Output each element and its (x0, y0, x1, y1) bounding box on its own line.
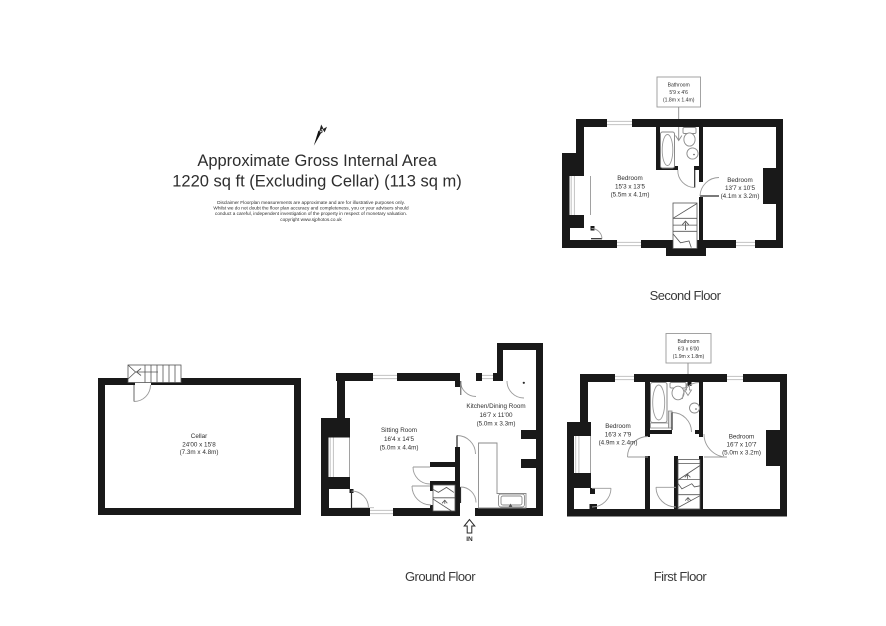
svg-text:Bedroom: Bedroom (617, 175, 643, 182)
svg-text:6'3 x 6'00: 6'3 x 6'00 (678, 347, 700, 353)
svg-text:Bedroom: Bedroom (729, 434, 755, 441)
svg-text:Second Floor: Second Floor (650, 288, 722, 303)
svg-text:Bedroom: Bedroom (727, 177, 753, 184)
svg-text:(4.1m x 3.2m): (4.1m x 3.2m) (721, 193, 760, 200)
svg-text:Disclaimer Floorplan measureme: Disclaimer Floorplan measurements are ap… (217, 200, 405, 205)
svg-text:(4.9m x 2.4m): (4.9m x 2.4m) (599, 440, 638, 447)
svg-text:Sitting Room: Sitting Room (381, 427, 417, 434)
svg-text:Approximate Gross Internal Are: Approximate Gross Internal Area (197, 152, 437, 170)
svg-text:Ground Floor: Ground Floor (405, 569, 476, 584)
svg-text:(5.0m x 3.2m): (5.0m x 3.2m) (722, 450, 761, 457)
svg-text:Cellar: Cellar (191, 433, 207, 440)
svg-text:15'3 x 13'5: 15'3 x 13'5 (615, 184, 646, 191)
svg-text:Kitchen/Dining Room: Kitchen/Dining Room (466, 403, 525, 410)
svg-text:Bedroom: Bedroom (605, 423, 631, 430)
svg-text:(5.0m x 3.3m): (5.0m x 3.3m) (477, 421, 516, 428)
svg-text:24'00 x 15'8: 24'00 x 15'8 (182, 442, 216, 449)
svg-text:Bathroom: Bathroom (668, 83, 690, 89)
svg-text:(5.0m x 4.4m): (5.0m x 4.4m) (380, 445, 419, 452)
svg-text:Whilst we do not doubt the flo: Whilst we do not doubt the floor plan ac… (213, 206, 409, 211)
svg-text:IN: IN (466, 536, 473, 543)
svg-text:conduct a careful, independent: conduct a careful, independent investiga… (215, 211, 407, 216)
svg-text:16'3 x 7'9: 16'3 x 7'9 (605, 432, 632, 439)
svg-text:(1.8m x 1.4m): (1.8m x 1.4m) (663, 98, 695, 104)
svg-text:5'9 x 4'6: 5'9 x 4'6 (669, 90, 688, 96)
svg-text:16'4 x 14'5: 16'4 x 14'5 (384, 436, 415, 443)
svg-text:copyright www.sjphotos.co.uk: copyright www.sjphotos.co.uk (280, 217, 342, 222)
svg-text:16'7 x 10'7: 16'7 x 10'7 (726, 442, 757, 449)
svg-text:(7.3m x 4.8m): (7.3m x 4.8m) (180, 449, 219, 456)
svg-text:13'7 x 10'5: 13'7 x 10'5 (725, 185, 756, 192)
svg-text:Bathroom: Bathroom (677, 339, 699, 345)
svg-text:First Floor: First Floor (654, 569, 708, 584)
svg-text:(1.9m x 1.8m): (1.9m x 1.8m) (673, 354, 705, 360)
svg-text:(5.5m x 4.1m): (5.5m x 4.1m) (611, 192, 650, 199)
svg-text:16'7 x 11'00: 16'7 x 11'00 (479, 412, 513, 419)
svg-text:1220 sq ft (Excluding Cellar): 1220 sq ft (Excluding Cellar) (113 sq m) (172, 173, 461, 191)
